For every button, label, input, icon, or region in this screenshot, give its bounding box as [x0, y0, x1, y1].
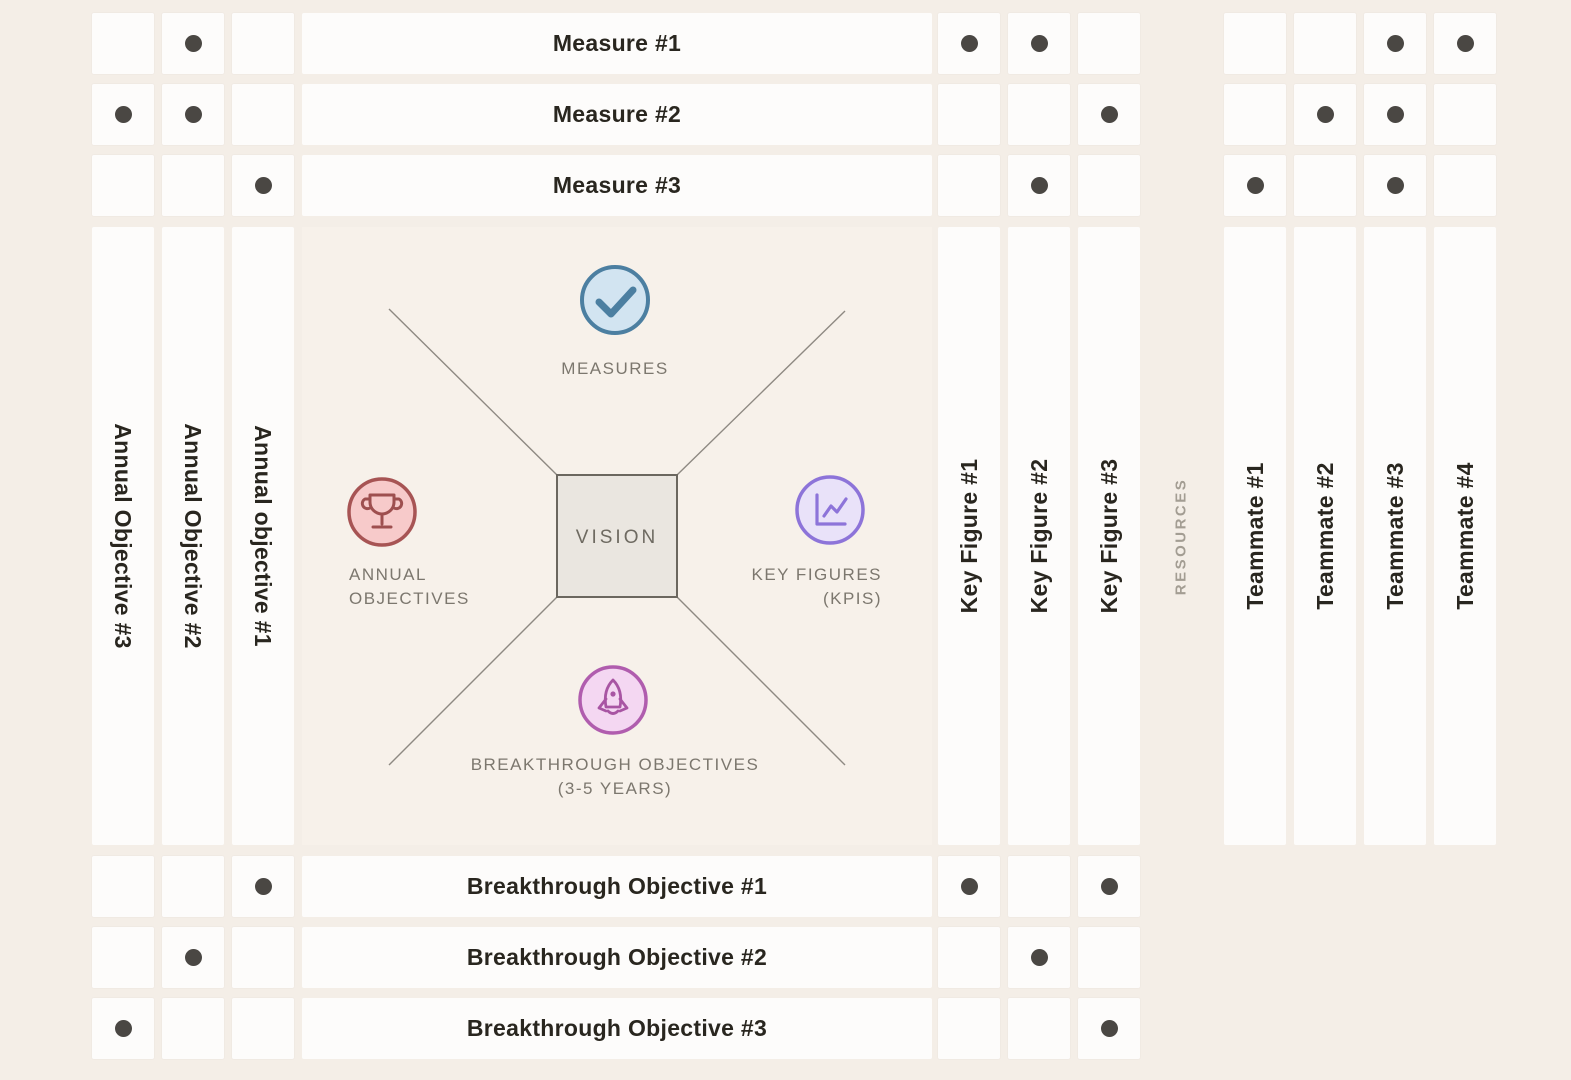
breakthrough-objectives-axis-label-line1: BREAKTHROUGH OBJECTIVES	[471, 755, 760, 774]
matrix-cell-measure-teammate	[1364, 155, 1426, 216]
correlation-dot	[1101, 106, 1118, 123]
center-panel: VISION MEASURES ANNUAL OBJECTIVES	[302, 227, 932, 845]
matrix-cell-measure-keyfigure	[938, 13, 1000, 74]
check-icon	[582, 267, 648, 333]
matrix-cell-measure-annual	[232, 84, 294, 145]
correlation-dot	[185, 949, 202, 966]
key-figures-axis-label-line2: (KPIS)	[823, 589, 882, 608]
measure-row-bar: Measure #2	[302, 84, 932, 145]
teammate-column: Teammate #3	[1364, 227, 1426, 845]
annual-objective-column-label: Annual Objective #2	[162, 227, 224, 845]
correlation-dot	[255, 878, 272, 895]
correlation-dot	[1101, 878, 1118, 895]
correlation-dot	[1031, 177, 1048, 194]
matrix-cell-measure-keyfigure	[1008, 13, 1070, 74]
matrix-cell-breakthrough-keyfigure	[1008, 856, 1070, 917]
matrix-cell-measure-teammate	[1224, 84, 1286, 145]
rocket-icon	[580, 667, 646, 733]
matrix-cell-measure-annual	[162, 84, 224, 145]
key-figure-column: Key Figure #3	[1078, 227, 1140, 845]
matrix-cell-breakthrough-annual	[92, 998, 154, 1059]
matrix-cell-breakthrough-keyfigure	[1008, 998, 1070, 1059]
correlation-dot	[1387, 177, 1404, 194]
teammate-column-label: Teammate #2	[1294, 227, 1356, 845]
teammate-column-label: Teammate #3	[1364, 227, 1426, 845]
matrix-cell-measure-keyfigure	[1008, 84, 1070, 145]
line-chart-icon	[797, 477, 863, 543]
key-figure-column: Key Figure #2	[1008, 227, 1070, 845]
breakthrough-row-bar: Breakthrough Objective #1	[302, 856, 932, 917]
annual-objective-column-label: Annual objective #1	[232, 227, 294, 845]
key-figures-axis-label-line1: KEY FIGURES	[752, 565, 883, 584]
matrix-cell-measure-annual	[92, 155, 154, 216]
matrix-cell-breakthrough-annual	[162, 998, 224, 1059]
key-figure-column-label: Key Figure #3	[1078, 227, 1140, 845]
measure-row-bar: Measure #1	[302, 13, 932, 74]
matrix-cell-measure-keyfigure	[938, 84, 1000, 145]
x-matrix-canvas: VISION MEASURES ANNUAL OBJECTIVES	[0, 0, 1571, 1080]
teammate-column: Teammate #2	[1294, 227, 1356, 845]
vision-label: VISION	[576, 527, 658, 548]
matrix-cell-measure-teammate	[1294, 155, 1356, 216]
correlation-dot	[255, 177, 272, 194]
correlation-dot	[185, 35, 202, 52]
correlation-dot	[185, 106, 202, 123]
matrix-cell-breakthrough-keyfigure	[938, 998, 1000, 1059]
matrix-cell-breakthrough-keyfigure	[1078, 927, 1140, 988]
matrix-cell-measure-teammate	[1224, 155, 1286, 216]
matrix-cell-breakthrough-annual	[92, 856, 154, 917]
teammate-column-label: Teammate #1	[1224, 227, 1286, 845]
matrix-cell-breakthrough-annual	[162, 927, 224, 988]
matrix-cell-measure-keyfigure	[1008, 155, 1070, 216]
matrix-cell-measure-keyfigure	[1078, 13, 1140, 74]
matrix-cell-breakthrough-keyfigure	[1078, 856, 1140, 917]
breakthrough-objectives-axis-label-line2: (3-5 YEARS)	[558, 779, 672, 798]
key-figure-column-label: Key Figure #1	[938, 227, 1000, 845]
matrix-cell-measure-annual	[232, 155, 294, 216]
matrix-cell-measure-annual	[162, 13, 224, 74]
matrix-cell-measure-annual	[232, 13, 294, 74]
correlation-dot	[1101, 1020, 1118, 1037]
annual-objectives-axis-label-line1: ANNUAL	[349, 565, 427, 584]
matrix-cell-breakthrough-annual	[232, 856, 294, 917]
matrix-cell-measure-keyfigure	[1078, 84, 1140, 145]
correlation-dot	[1387, 106, 1404, 123]
matrix-cell-measure-annual	[92, 13, 154, 74]
matrix-cell-measure-teammate	[1294, 13, 1356, 74]
breakthrough-row-bar: Breakthrough Objective #3	[302, 998, 932, 1059]
matrix-cell-breakthrough-keyfigure	[1078, 998, 1140, 1059]
key-figure-column-label: Key Figure #2	[1008, 227, 1070, 845]
correlation-dot	[1031, 35, 1048, 52]
teammate-column-label: Teammate #4	[1434, 227, 1496, 845]
measures-axis-label: MEASURES	[561, 359, 668, 378]
trophy-icon	[349, 479, 415, 545]
correlation-dot	[1457, 35, 1474, 52]
matrix-cell-measure-teammate	[1364, 13, 1426, 74]
matrix-cell-measure-teammate	[1434, 13, 1496, 74]
matrix-cell-breakthrough-annual	[232, 998, 294, 1059]
matrix-cell-measure-teammate	[1364, 84, 1426, 145]
matrix-cell-measure-teammate	[1434, 84, 1496, 145]
teammate-column: Teammate #4	[1434, 227, 1496, 845]
matrix-cell-measure-annual	[162, 155, 224, 216]
annual-objectives-axis-label-line2: OBJECTIVES	[349, 589, 470, 608]
matrix-cell-breakthrough-annual	[162, 856, 224, 917]
annual-objective-column: Annual objective #1	[232, 227, 294, 845]
correlation-dot	[115, 1020, 132, 1037]
correlation-dot	[1317, 106, 1334, 123]
matrix-cell-measure-teammate	[1294, 84, 1356, 145]
matrix-cell-measure-keyfigure	[1078, 155, 1140, 216]
matrix-cell-measure-teammate	[1434, 155, 1496, 216]
breakthrough-row-bar: Breakthrough Objective #2	[302, 927, 932, 988]
matrix-cell-breakthrough-annual	[232, 927, 294, 988]
measure-row-bar: Measure #3	[302, 155, 932, 216]
x-diagram: VISION MEASURES ANNUAL OBJECTIVES	[302, 227, 932, 845]
annual-objective-column: Annual Objective #3	[92, 227, 154, 845]
correlation-dot	[1247, 177, 1264, 194]
matrix-cell-measure-keyfigure	[938, 155, 1000, 216]
correlation-dot	[961, 35, 978, 52]
matrix-cell-breakthrough-keyfigure	[938, 927, 1000, 988]
matrix-cell-breakthrough-keyfigure	[1008, 927, 1070, 988]
matrix-cell-breakthrough-keyfigure	[938, 856, 1000, 917]
teammate-column: Teammate #1	[1224, 227, 1286, 845]
annual-objective-column: Annual Objective #2	[162, 227, 224, 845]
correlation-dot	[961, 878, 978, 895]
matrix-cell-measure-annual	[92, 84, 154, 145]
key-figure-column: Key Figure #1	[938, 227, 1000, 845]
matrix-cell-breakthrough-annual	[92, 927, 154, 988]
matrix-cell-measure-teammate	[1224, 13, 1286, 74]
annual-objective-column-label: Annual Objective #3	[92, 227, 154, 845]
correlation-dot	[1387, 35, 1404, 52]
correlation-dot	[115, 106, 132, 123]
correlation-dot	[1031, 949, 1048, 966]
